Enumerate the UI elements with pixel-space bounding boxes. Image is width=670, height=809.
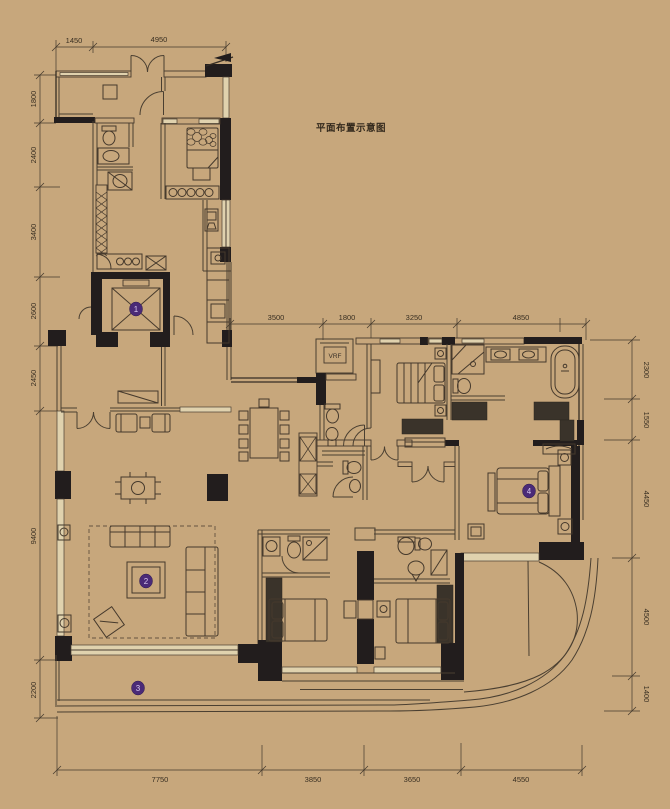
svg-text:1800: 1800 <box>339 313 356 322</box>
svg-text:3400: 3400 <box>29 224 38 241</box>
svg-text:4550: 4550 <box>513 775 530 784</box>
svg-text:1: 1 <box>134 305 139 314</box>
svg-text:3650: 3650 <box>404 775 421 784</box>
svg-text:2600: 2600 <box>29 303 38 320</box>
svg-text:3: 3 <box>136 684 141 693</box>
svg-text:7750: 7750 <box>152 775 169 784</box>
svg-text:2400: 2400 <box>29 147 38 164</box>
svg-text:9400: 9400 <box>29 528 38 545</box>
svg-text:4950: 4950 <box>151 35 168 44</box>
svg-text:4450: 4450 <box>642 491 651 508</box>
svg-text:2300: 2300 <box>642 362 651 379</box>
svg-text:1550: 1550 <box>642 412 651 429</box>
svg-text:1400: 1400 <box>642 686 651 703</box>
svg-text:VRF: VRF <box>329 353 342 360</box>
svg-text:4: 4 <box>527 487 532 496</box>
svg-text:4500: 4500 <box>642 609 651 626</box>
svg-text:3500: 3500 <box>268 313 285 322</box>
svg-text:1450: 1450 <box>66 36 83 45</box>
svg-text:1800: 1800 <box>29 91 38 108</box>
svg-text:2200: 2200 <box>29 682 38 699</box>
svg-text:平面布置示意图: 平面布置示意图 <box>316 122 386 134</box>
svg-text:2450: 2450 <box>29 370 38 387</box>
svg-text:4850: 4850 <box>513 313 530 322</box>
svg-text:3250: 3250 <box>406 313 423 322</box>
svg-text:3850: 3850 <box>305 775 322 784</box>
svg-text:2: 2 <box>144 577 149 586</box>
